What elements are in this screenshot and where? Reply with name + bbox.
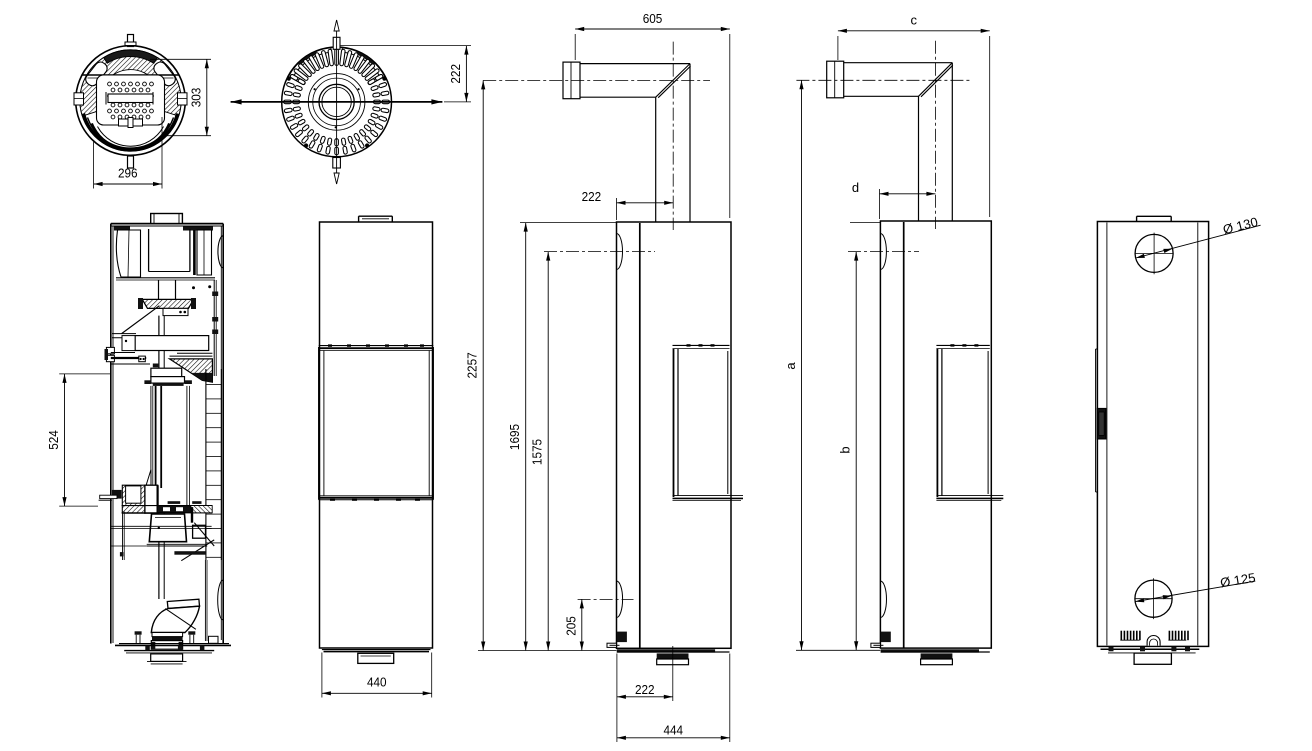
svg-text:605: 605 [643, 11, 663, 26]
svg-text:2257: 2257 [465, 352, 480, 378]
svg-text:222: 222 [448, 64, 463, 84]
svg-text:524: 524 [46, 430, 61, 450]
svg-text:222: 222 [635, 682, 655, 697]
svg-text:303: 303 [188, 88, 203, 108]
svg-text:b: b [838, 446, 853, 453]
svg-text:a: a [783, 362, 798, 370]
svg-text:222: 222 [582, 189, 602, 204]
svg-text:d: d [852, 180, 859, 195]
svg-text:440: 440 [367, 675, 387, 690]
svg-text:c: c [911, 13, 918, 28]
svg-text:1695: 1695 [507, 424, 522, 450]
svg-text:1575: 1575 [530, 439, 545, 465]
svg-text:444: 444 [664, 723, 684, 738]
svg-text:205: 205 [563, 616, 578, 636]
svg-text:296: 296 [118, 166, 138, 181]
